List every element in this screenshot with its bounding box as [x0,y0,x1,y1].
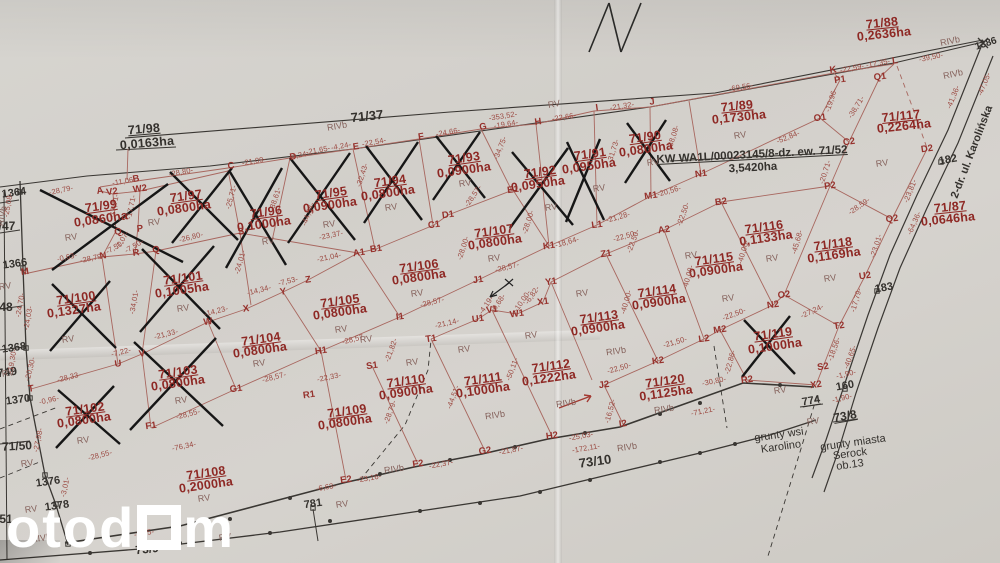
soil-class-label: RV [76,434,90,446]
soil-class-label: RV [252,357,266,369]
vertex-label: C1 [427,219,441,232]
vertex-label: Q2 [885,213,899,226]
soil-class-label: RV [20,457,34,469]
vertex-label: X2 [809,379,822,392]
map-annotation: 71/50 [2,438,33,454]
vertex-label: H2 [545,430,559,443]
soil-class-label: RV [684,249,698,261]
vertex-label: R1 [302,389,316,402]
soil-class-label: RV [544,201,558,213]
boundary-dot [538,490,542,494]
watermark-prefix: otod [6,496,135,559]
soil-class-label: RV [147,216,161,228]
boundary-line-black [125,40,983,138]
vertex-label: D2 [920,143,934,156]
soil-class-label: RV [176,302,190,314]
vertex-label: L [891,55,898,67]
soil-class-label: RV [334,323,348,335]
vertex-label: S [237,226,245,238]
vertex-label: P1 [833,74,846,87]
vertex-label: G2 [478,445,492,458]
soil-class-label: RV [733,129,747,141]
map-annotation: 781 [303,497,323,511]
vertex-label: U2 [858,270,872,283]
soil-class-label: RV [322,218,336,230]
vertex-label: T1 [425,333,438,345]
boundary-line-black [714,346,727,428]
vertex-label: B2 [714,196,728,209]
soil-class-label: RV [773,384,787,396]
soil-class-label: RV [359,333,373,345]
vertex-label: W2 [132,183,148,196]
vertex-label: A [96,185,104,197]
vertex-label: C2 [842,136,856,149]
vertex-label: V [138,348,146,360]
soil-class-label: RV [765,252,779,264]
vertex-label: Z1 [600,248,613,260]
vertex-label: B1 [369,243,383,256]
boundary-dot [658,460,662,464]
soil-class-label: RV [405,356,419,368]
boundary-dot [698,401,702,405]
map-annotation: 48 [0,300,13,314]
vertex-label: E [352,141,360,153]
boundary-dot [268,531,272,535]
vertex-label: E1 [506,184,519,197]
boundary-dot [288,496,292,500]
soil-class-label: RV [1,367,15,379]
soil-class-label: RV [806,415,820,427]
boundary-dot [588,478,592,482]
vertex-label: L2 [698,333,711,345]
soil-class-label: RV [64,231,78,243]
north-arrow-icon [609,3,621,52]
vertex-label: S1 [365,360,378,373]
soil-class-label: RV [575,287,589,299]
vertex-label: H [534,116,542,128]
watermark-square-glyph [137,505,181,550]
soil-class-label: RV [721,292,735,304]
parcel-line-red [551,254,606,282]
vertex-label: Y1 [544,276,557,289]
vertex-label: M2 [713,324,728,337]
parcel-line-red [31,354,142,389]
vertex-label: I1 [395,311,404,323]
soil-class-label: RV [875,157,889,169]
vertex-label: F1 [145,420,158,432]
direction-arrow-icon [584,395,591,396]
map-annotation: 3,5420ha [728,161,777,176]
vertex-label: F [417,131,424,143]
soil-class-label: RV [0,280,12,292]
vertex-label: E2 [339,474,352,487]
soil-class-label: RV [335,498,349,510]
soil-class-label: RV [524,329,538,341]
boundary-line-black [313,509,318,541]
soil-class-label: RV [646,156,660,168]
vertex-label: G1 [229,383,243,396]
vertex-label: S2 [816,361,829,374]
boundary-dot [478,501,482,505]
vertex-label: T2 [833,320,846,332]
vertex-label: A1 [352,247,366,260]
soil-class-label: RV [547,98,561,110]
vertex-label: L1 [591,219,604,231]
vertex-label: K2 [651,355,665,368]
soil-class-label: RV [823,272,837,284]
vertex-label: X [242,303,250,315]
vertex-label: Y [279,286,287,298]
vertex-label: R2 [740,374,754,387]
vertex-label: U [114,358,122,370]
vertex-label: N1 [694,168,708,181]
soil-class-label: RV [174,394,188,406]
parcel-line-red [419,139,433,225]
vertex-label: O2 [777,289,791,302]
north-arrow-icon [621,3,641,52]
parcel-line-red [208,322,236,389]
vertex-label: T [27,383,34,395]
vertex-label: M [20,266,29,278]
watermark-suffix: m [183,496,235,559]
vertex-label: Q1 [873,71,887,84]
vertex-label: O1 [813,112,827,125]
soil-class-label: RV [261,235,275,247]
vertex-label: A2 [657,224,671,237]
vertex-label: J1 [472,274,484,286]
soil-class-label: RV [487,252,501,264]
boundary-line-black [0,407,58,429]
vertex-label: P [136,223,144,235]
vertex-label: Q [152,244,161,256]
map-canvas [0,0,1000,563]
north-arrow-icon [589,3,609,52]
soil-class-label: RV [384,201,398,213]
soil-class-label: RV [457,343,471,355]
otodom-watermark: otodm [6,500,235,556]
vertex-label: J2 [598,379,610,391]
boundary-dot [418,509,422,513]
soil-class-label: RV [410,287,424,299]
vertex-label: I2 [618,418,627,430]
vertex-label: F2 [412,458,425,470]
soil-class-label: RV [458,177,472,189]
boundary-dot [733,442,737,446]
vertex-label: G [479,121,488,133]
boundary-dot [698,451,702,455]
vertex-label: C [227,160,235,172]
vertex-label: D1 [441,209,455,222]
soil-class-label: RV [592,182,606,194]
vertex-label: X1 [536,296,549,309]
vertex-label: H1 [314,345,328,358]
boundary-dot [328,519,332,523]
soil-class-label: RV [61,333,75,345]
scanned-cadastral-map: 71/990,0860ha71/970,0800ha71/960,1000ha7… [0,0,1000,563]
parcel-line-red [721,186,830,202]
vertex-label: Z [304,274,311,286]
